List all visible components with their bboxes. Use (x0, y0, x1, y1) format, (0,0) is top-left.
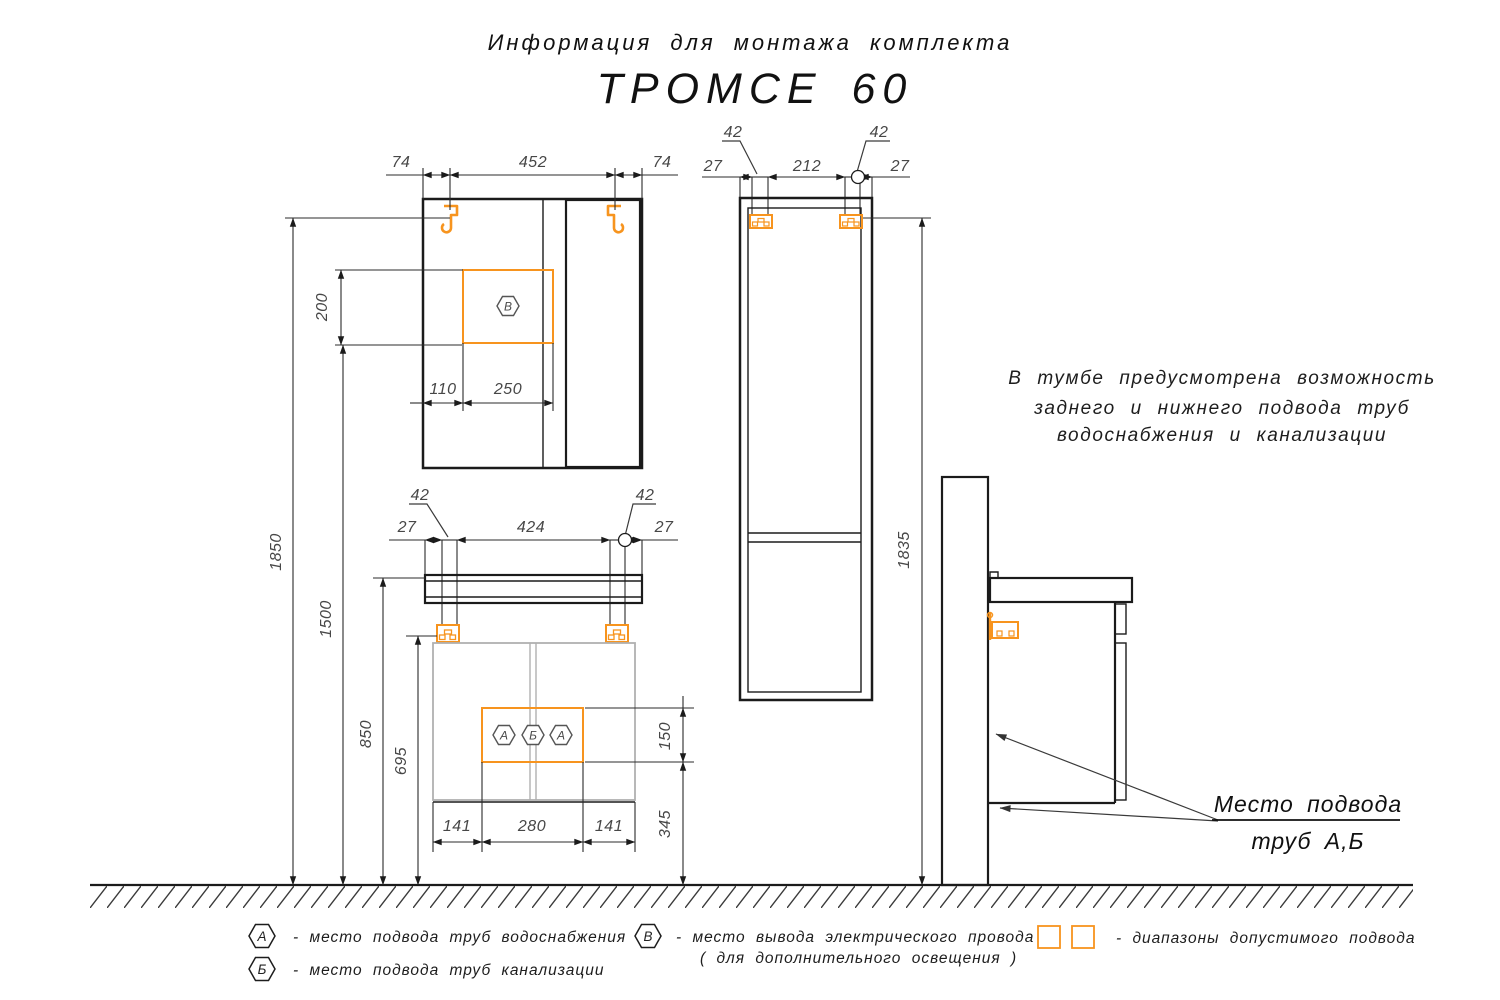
note-line2: заднего и нижнего подвода труб (1033, 398, 1410, 419)
dim-label: 74 (653, 154, 672, 171)
product-name: ТРОМСЕ 60 (597, 65, 914, 113)
floor (90, 885, 1413, 908)
installation-drawing-page: Информация для монтажа комплекта ТРОМСЕ … (0, 0, 1500, 1000)
legend-item-v: В - место вывода электрического провода … (635, 925, 1034, 968)
dim-label: 27 (397, 519, 417, 536)
legend-text-a: - место подвода труб водоснабжения (293, 929, 626, 946)
dim-label: 27 (890, 158, 910, 175)
zone-symbol-b: Б (529, 729, 537, 743)
dim-label: 695 (393, 747, 410, 775)
mirror-top-dimensions: 74 452 74 (386, 154, 678, 210)
legend-symbol-v: В (643, 929, 652, 944)
dim-label: 141 (443, 818, 471, 835)
mount-bracket-right-icon (606, 625, 628, 642)
dim-label: 27 (703, 158, 723, 175)
mount-bracket-side-icon (988, 613, 1019, 641)
mirror-outlet-dimensions: 110 250 (410, 343, 553, 411)
zone-height-dimensions: 150 345 (585, 696, 694, 885)
legend-item-hatch: - диапазоны допустимого подвода (1038, 926, 1415, 948)
diagonal-hatch-swatch-icon (1038, 926, 1060, 948)
legend-item-a: А - место подвода труб водоснабжения (249, 925, 626, 948)
dim-label: 27 (654, 519, 674, 536)
dim-label: 150 (657, 722, 674, 750)
legend-text-v: - место вывода электрического провода (676, 929, 1034, 946)
mirror-cabinet-outline (423, 199, 642, 468)
countertop-side (990, 578, 1132, 602)
dim-label: 42 (870, 124, 889, 141)
zone-symbol-hexagons: А Б А (493, 726, 572, 745)
legend-text-hatch: - диапазоны допустимого подвода (1116, 930, 1415, 947)
dim-label: 42 (724, 124, 743, 141)
callout-line1: Место подвода (1214, 791, 1402, 817)
zone-symbol-a1: А (499, 729, 508, 743)
dim-label: 200 (314, 293, 331, 322)
dim-label: 212 (792, 158, 821, 175)
note-line3: водоснабжения и канализации (1057, 425, 1387, 446)
floor-hatch (90, 886, 1413, 908)
title-block: Информация для монтажа комплекта ТРОМСЕ … (488, 30, 1013, 113)
dim-label: 250 (493, 381, 522, 398)
dim-label: 42 (636, 487, 655, 504)
dim-label: 452 (519, 154, 547, 171)
vanity-top-dimensions: 27 424 27 (389, 519, 678, 625)
legend-text-b: - место подвода труб канализации (293, 962, 605, 979)
legend-text-v2: ( для дополнительного освещения ) (700, 950, 1017, 967)
callout-line2: труб А,Б (1252, 828, 1365, 854)
drawing-canvas: Информация для монтажа комплекта ТРОМСЕ … (0, 0, 1500, 1000)
dim-label: 1850 (268, 533, 285, 571)
datum-circle (619, 534, 632, 547)
vanity-front-view: 42 42 27 424 27 (358, 487, 694, 885)
pointer-arrow-lower (1000, 808, 1218, 821)
dim-label: 424 (517, 519, 545, 536)
dim-label: 1835 (896, 531, 913, 569)
vanity-body-outline (433, 643, 635, 800)
mount-bracket-left-icon (437, 625, 459, 642)
dim-label: 110 (429, 381, 456, 398)
pipe-callout: Место подвода труб А,Б (1212, 791, 1402, 854)
vanity-height-dimensions: 850 695 (358, 578, 437, 885)
dim-label: 74 (392, 154, 411, 171)
pointer-arrow-upper (996, 734, 1218, 820)
legend-symbol-b: Б (258, 962, 267, 977)
mount-bracket-left-icon (750, 215, 772, 228)
dim-label: 1500 (318, 600, 335, 638)
outlet-symbol: В (504, 300, 512, 314)
wall-section (942, 477, 988, 885)
dim-label: 141 (595, 818, 623, 835)
note-line1: В тумбе предусмотрена возможность (1008, 368, 1436, 389)
tall-top-dimensions: 27 212 27 (702, 158, 910, 215)
zone-symbol-a2: А (556, 729, 565, 743)
zone-width-dimensions: 141 280 141 (433, 762, 635, 852)
dim-label: 280 (517, 818, 546, 835)
note-block: В тумбе предусмотрена возможность заднег… (1008, 368, 1436, 446)
dim-label: 850 (358, 720, 375, 748)
legend: А - место подвода труб водоснабжения Б -… (249, 925, 1415, 981)
legend-item-b: Б - место подвода труб канализации (249, 958, 605, 981)
mirror-cabinet-front-view: В 74 452 74 110 250 (268, 154, 678, 885)
datum-circle (852, 171, 865, 184)
outlet-height-dimension: 200 (314, 270, 463, 345)
mount-bracket-right-icon (840, 215, 862, 228)
tall-cabinet-front-view: 42 42 27 212 27 (702, 124, 931, 885)
page-title: Информация для монтажа комплекта (488, 30, 1013, 55)
tall-cabinet-outline (740, 198, 872, 700)
cross-hatch-swatch-icon (1072, 926, 1094, 948)
side-view: Место подвода труб А,Б (942, 477, 1402, 885)
legend-symbol-a: А (256, 929, 266, 944)
outlet-symbol-hexagon: В (497, 297, 519, 316)
dim-label: 42 (411, 487, 430, 504)
dim-label: 345 (657, 810, 674, 838)
mirror-side-door (566, 200, 640, 467)
